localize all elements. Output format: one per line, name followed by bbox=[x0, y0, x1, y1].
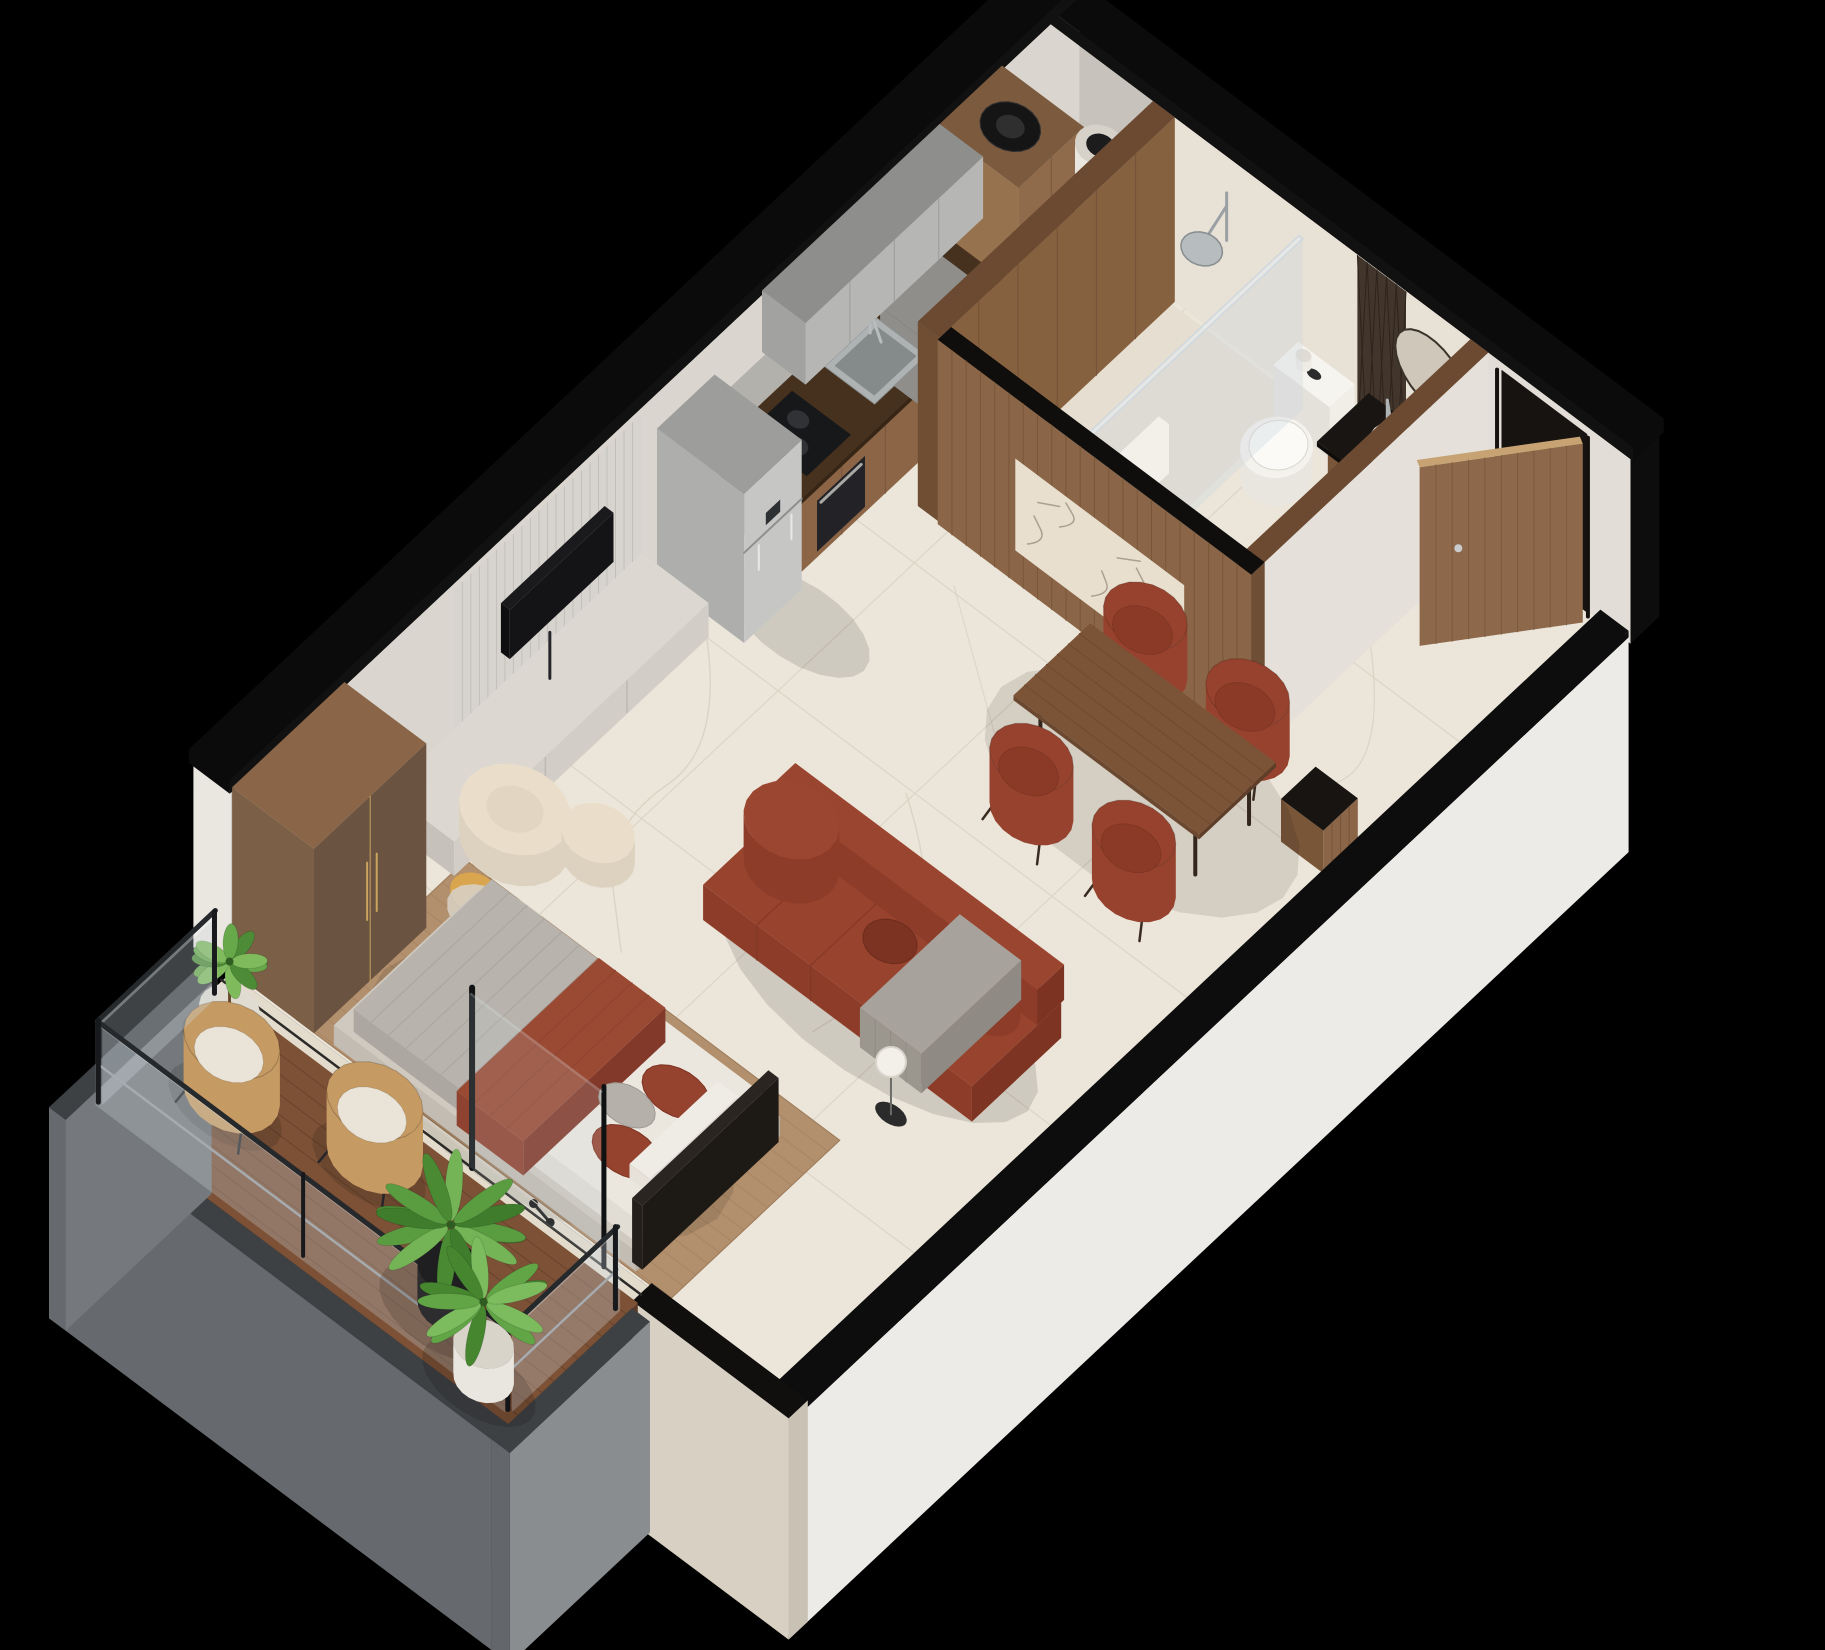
pouf-small bbox=[562, 803, 635, 888]
floorplan-render bbox=[0, 0, 1825, 1650]
sofa-arm-left bbox=[744, 781, 840, 904]
floor-lamp-globe bbox=[876, 1047, 906, 1077]
isometric-apartment-scene bbox=[0, 0, 1825, 1650]
entry-door-handle bbox=[1454, 544, 1462, 552]
entry-door bbox=[1417, 437, 1583, 646]
